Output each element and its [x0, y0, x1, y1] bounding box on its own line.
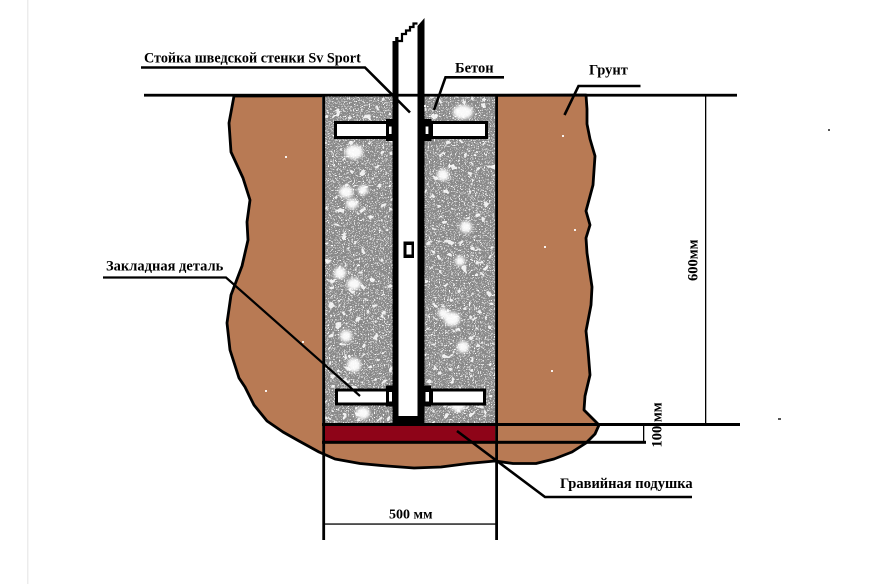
- svg-text:Гравийная подушка: Гравийная подушка: [560, 476, 693, 492]
- svg-text:Закладная деталь: Закладная деталь: [106, 259, 224, 275]
- svg-text:100 мм: 100 мм: [650, 402, 666, 447]
- svg-text:Бетон: Бетон: [455, 61, 494, 77]
- svg-text:Грунт: Грунт: [589, 63, 628, 79]
- svg-text:500 мм: 500 мм: [389, 508, 433, 523]
- svg-text:Стойка шведской стенки Sv Spor: Стойка шведской стенки Sv Sport: [144, 51, 361, 67]
- svg-text:600мм: 600мм: [686, 239, 702, 281]
